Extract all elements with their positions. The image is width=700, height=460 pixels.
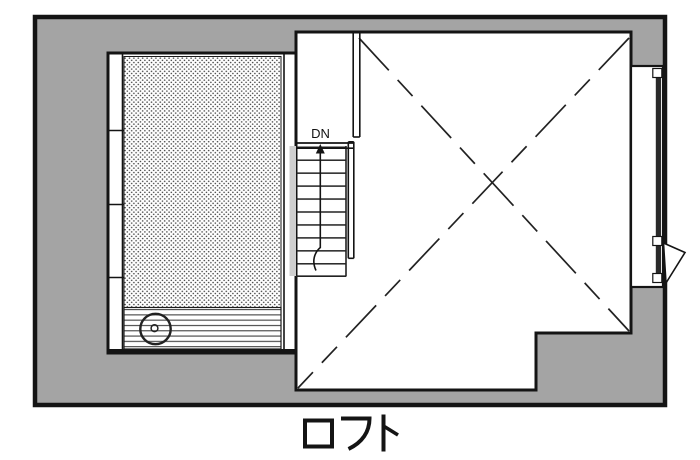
casement-swing-triangle <box>664 243 686 283</box>
floorplan-page: ロフト <box>0 0 700 460</box>
title-glyph-to <box>384 415 399 452</box>
page-title <box>305 415 398 452</box>
window-hinge <box>653 237 662 246</box>
stipple-floor <box>124 57 281 308</box>
title-glyph-to-tick <box>384 426 399 435</box>
window-hinge <box>653 69 662 78</box>
stair-treads <box>297 146 347 277</box>
title-glyph-fu <box>341 419 370 450</box>
right-window <box>631 66 685 287</box>
stair-direction-label: DN <box>311 126 330 141</box>
tatami-room <box>107 53 297 353</box>
title-glyph-ro <box>305 421 332 447</box>
window-glass-line <box>656 71 661 283</box>
stair-stringer <box>290 146 297 276</box>
floorplan-svg: DN <box>0 0 700 460</box>
window-hinge <box>653 274 662 283</box>
